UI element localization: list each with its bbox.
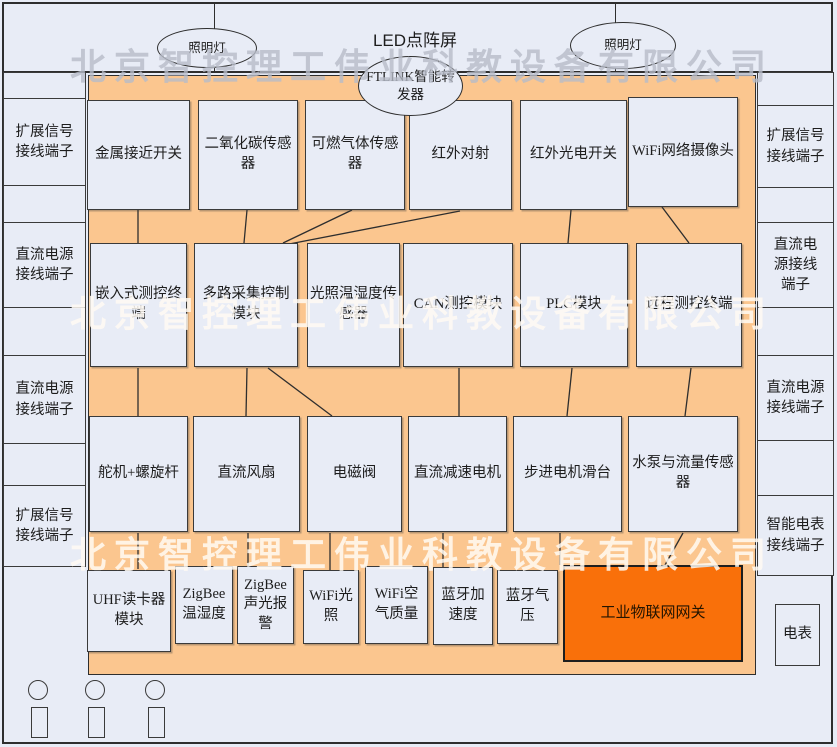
device-label: 红外光电开关 <box>530 145 617 165</box>
right-terminal-label-1: 直流电源接线端子 <box>770 235 821 296</box>
power-meter-label: 电表 <box>783 625 812 645</box>
left-terminal-cell-empty-3 <box>3 443 86 486</box>
lamp-left-label: 照明灯 <box>188 40 226 56</box>
left-terminal-cell-empty-2 <box>3 307 86 356</box>
device-box-combustible-gas-sensor: 可燃气体传感器 <box>305 100 405 210</box>
right-terminal-cell-empty-1 <box>757 187 834 223</box>
device-label: 蓝牙加速度 <box>436 586 490 625</box>
device-label: 嵌入式测控终端 <box>93 285 184 324</box>
device-box-embedded-control-terminal: 嵌入式测控终端 <box>90 243 187 367</box>
device-box-dc-fan: 直流风扇 <box>193 416 300 532</box>
device-box-wifi-light: WiFi光照 <box>303 570 359 644</box>
device-box-stepper-motor-slide: 步进电机滑台 <box>513 416 622 532</box>
left-terminal-label-3: 扩展信号接线端子 <box>10 506 79 547</box>
device-box-servo-screw: 舵机+螺旋杆 <box>89 416 188 532</box>
device-box-co2-sensor: 二氧化碳传感器 <box>198 100 298 210</box>
device-box-water-pump-flow-sensor: 水泵与流量传感器 <box>628 416 738 532</box>
device-box-metal-proximity-switch: 金属接近开关 <box>87 100 190 210</box>
device-box-iot-gateway: 工业物联网网关 <box>563 565 743 662</box>
device-label: 步进电机滑台 <box>524 464 611 484</box>
knob-circle-3 <box>145 680 165 700</box>
right-terminal-cell-1: 直流电源接线端子 <box>757 222 834 308</box>
device-label: 蓝牙气压 <box>500 587 555 626</box>
device-label: 二氧化碳传感器 <box>201 135 295 174</box>
device-box-wifi-camera: WiFi网络摄像头 <box>628 97 738 207</box>
left-terminal-cell-1: 直流电源接线端子 <box>3 222 86 308</box>
device-label: 红外对射 <box>432 145 490 165</box>
left-terminal-label-1: 直流电源接线端子 <box>10 245 79 286</box>
device-label: 远程测控终端 <box>646 295 733 315</box>
switch-rect-2 <box>88 707 105 738</box>
ftlink-repeater-label: FTLINK智能转发器 <box>365 68 456 103</box>
device-box-bluetooth-pressure: 蓝牙气压 <box>497 570 558 644</box>
device-label: PLC模块 <box>546 295 602 315</box>
device-box-zigbee-temp-humidity: ZigBee温湿度 <box>175 566 233 644</box>
switch-rect-1 <box>31 707 48 738</box>
right-terminal-label-0: 扩展信号接线端子 <box>764 126 827 167</box>
device-box-infrared-photoelectric-switch: 红外光电开关 <box>520 100 627 210</box>
right-terminal-label-2: 直流电源接线端子 <box>764 378 827 419</box>
knob-circle-2 <box>85 680 105 700</box>
device-box-wifi-air-quality: WiFi空气质量 <box>365 566 428 644</box>
ftlink-repeater-ellipse: FTLINK智能转发器 <box>358 56 463 116</box>
lamp-ellipse-right: 照明灯 <box>570 22 676 69</box>
left-terminal-cell-empty-0 <box>3 72 86 99</box>
device-label: WiFi空气质量 <box>368 585 425 624</box>
lamp-right-label: 照明灯 <box>604 37 642 53</box>
power-meter-box: 电表 <box>775 604 820 666</box>
left-terminal-label-0: 扩展信号接线端子 <box>10 122 79 163</box>
device-label: 多路采集控制模块 <box>197 285 295 324</box>
device-box-dc-gear-motor: 直流减速电机 <box>408 416 507 532</box>
knob-circle-1 <box>28 680 48 700</box>
left-terminal-cell-0: 扩展信号接线端子 <box>3 98 86 186</box>
left-terminal-label-2: 直流电源接线端子 <box>10 379 79 420</box>
device-label: 直流风扇 <box>218 464 276 484</box>
left-terminal-cell-empty-1 <box>3 185 86 223</box>
left-terminal-cell-3: 扩展信号接线端子 <box>3 485 86 567</box>
device-label: 可燃气体传感器 <box>308 135 402 174</box>
right-terminal-cell-empty-3 <box>757 440 834 496</box>
device-box-can-control-module: CAN测控模块 <box>403 243 513 367</box>
device-box-light-temp-humidity-sensor: 光照温湿度传感器 <box>307 243 400 367</box>
right-terminal-label-3: 智能电表接线端子 <box>764 515 827 556</box>
device-label: 光照温湿度传感器 <box>310 285 397 324</box>
right-terminal-cell-2: 直流电源接线端子 <box>757 355 834 441</box>
right-terminal-cell-empty-0 <box>757 72 834 106</box>
device-box-plc-module: PLC模块 <box>520 243 628 367</box>
device-label: WiFi网络摄像头 <box>632 142 734 162</box>
lamp-ellipse-left: 照明灯 <box>157 28 257 68</box>
device-box-uhf-reader: UHF读卡器模块 <box>87 570 171 652</box>
device-label: ZigBee温湿度 <box>178 585 230 624</box>
device-label: 金属接近开关 <box>95 145 182 165</box>
left-terminal-cell-2: 直流电源接线端子 <box>3 355 86 444</box>
device-label: ZigBee声光报警 <box>240 576 291 635</box>
right-terminal-cell-0: 扩展信号接线端子 <box>757 105 834 188</box>
device-box-multi-channel-acquisition-module: 多路采集控制模块 <box>194 243 298 367</box>
device-label: 舵机+螺旋杆 <box>98 464 179 484</box>
device-label: 电磁阀 <box>333 464 377 484</box>
right-terminal-cell-3: 智能电表接线端子 <box>757 495 834 576</box>
device-box-infrared-beam: 红外对射 <box>409 100 512 210</box>
device-box-bluetooth-accelerometer: 蓝牙加速度 <box>433 567 493 645</box>
device-label: UHF读卡器模块 <box>90 591 168 630</box>
device-label: 直流减速电机 <box>414 464 501 484</box>
device-label: WiFi光照 <box>306 587 356 626</box>
device-label: 水泵与流量传感器 <box>631 454 735 493</box>
device-box-solenoid-valve: 电磁阀 <box>307 416 402 532</box>
right-terminal-cell-empty-2 <box>757 307 834 356</box>
iot-gateway-label: 工业物联网网关 <box>600 603 705 623</box>
device-box-remote-control-terminal: 远程测控终端 <box>636 243 742 367</box>
device-label: CAN测控模块 <box>414 295 503 315</box>
device-box-zigbee-sound-light-alarm: ZigBee声光报警 <box>237 566 294 644</box>
switch-rect-3 <box>148 707 165 738</box>
